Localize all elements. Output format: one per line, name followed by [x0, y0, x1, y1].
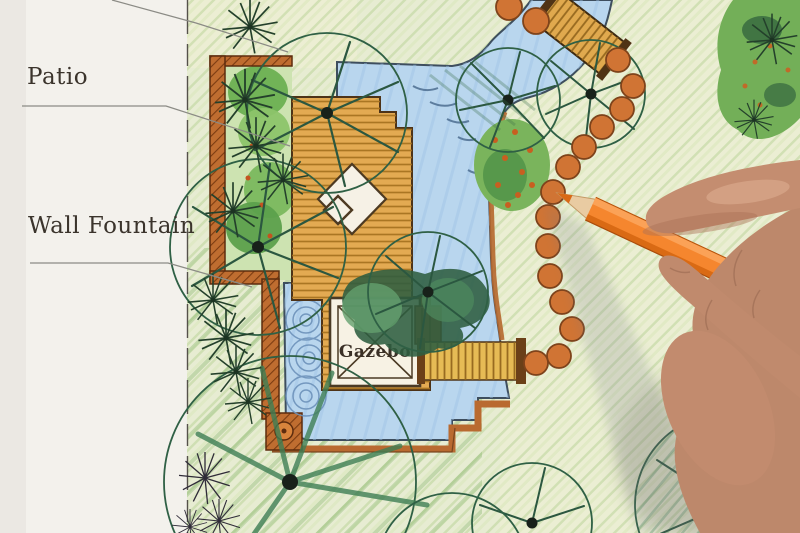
- patio-label: Patio: [27, 64, 88, 90]
- wall-fountain-label: Wall Fountain: [28, 213, 195, 239]
- landscape-plan-drawing: Gazebo: [0, 0, 800, 533]
- corner-shrub: [717, 0, 800, 139]
- paper-edge-shade: [0, 0, 26, 533]
- photo-of-landscape-plan: Gazebo: [0, 0, 800, 533]
